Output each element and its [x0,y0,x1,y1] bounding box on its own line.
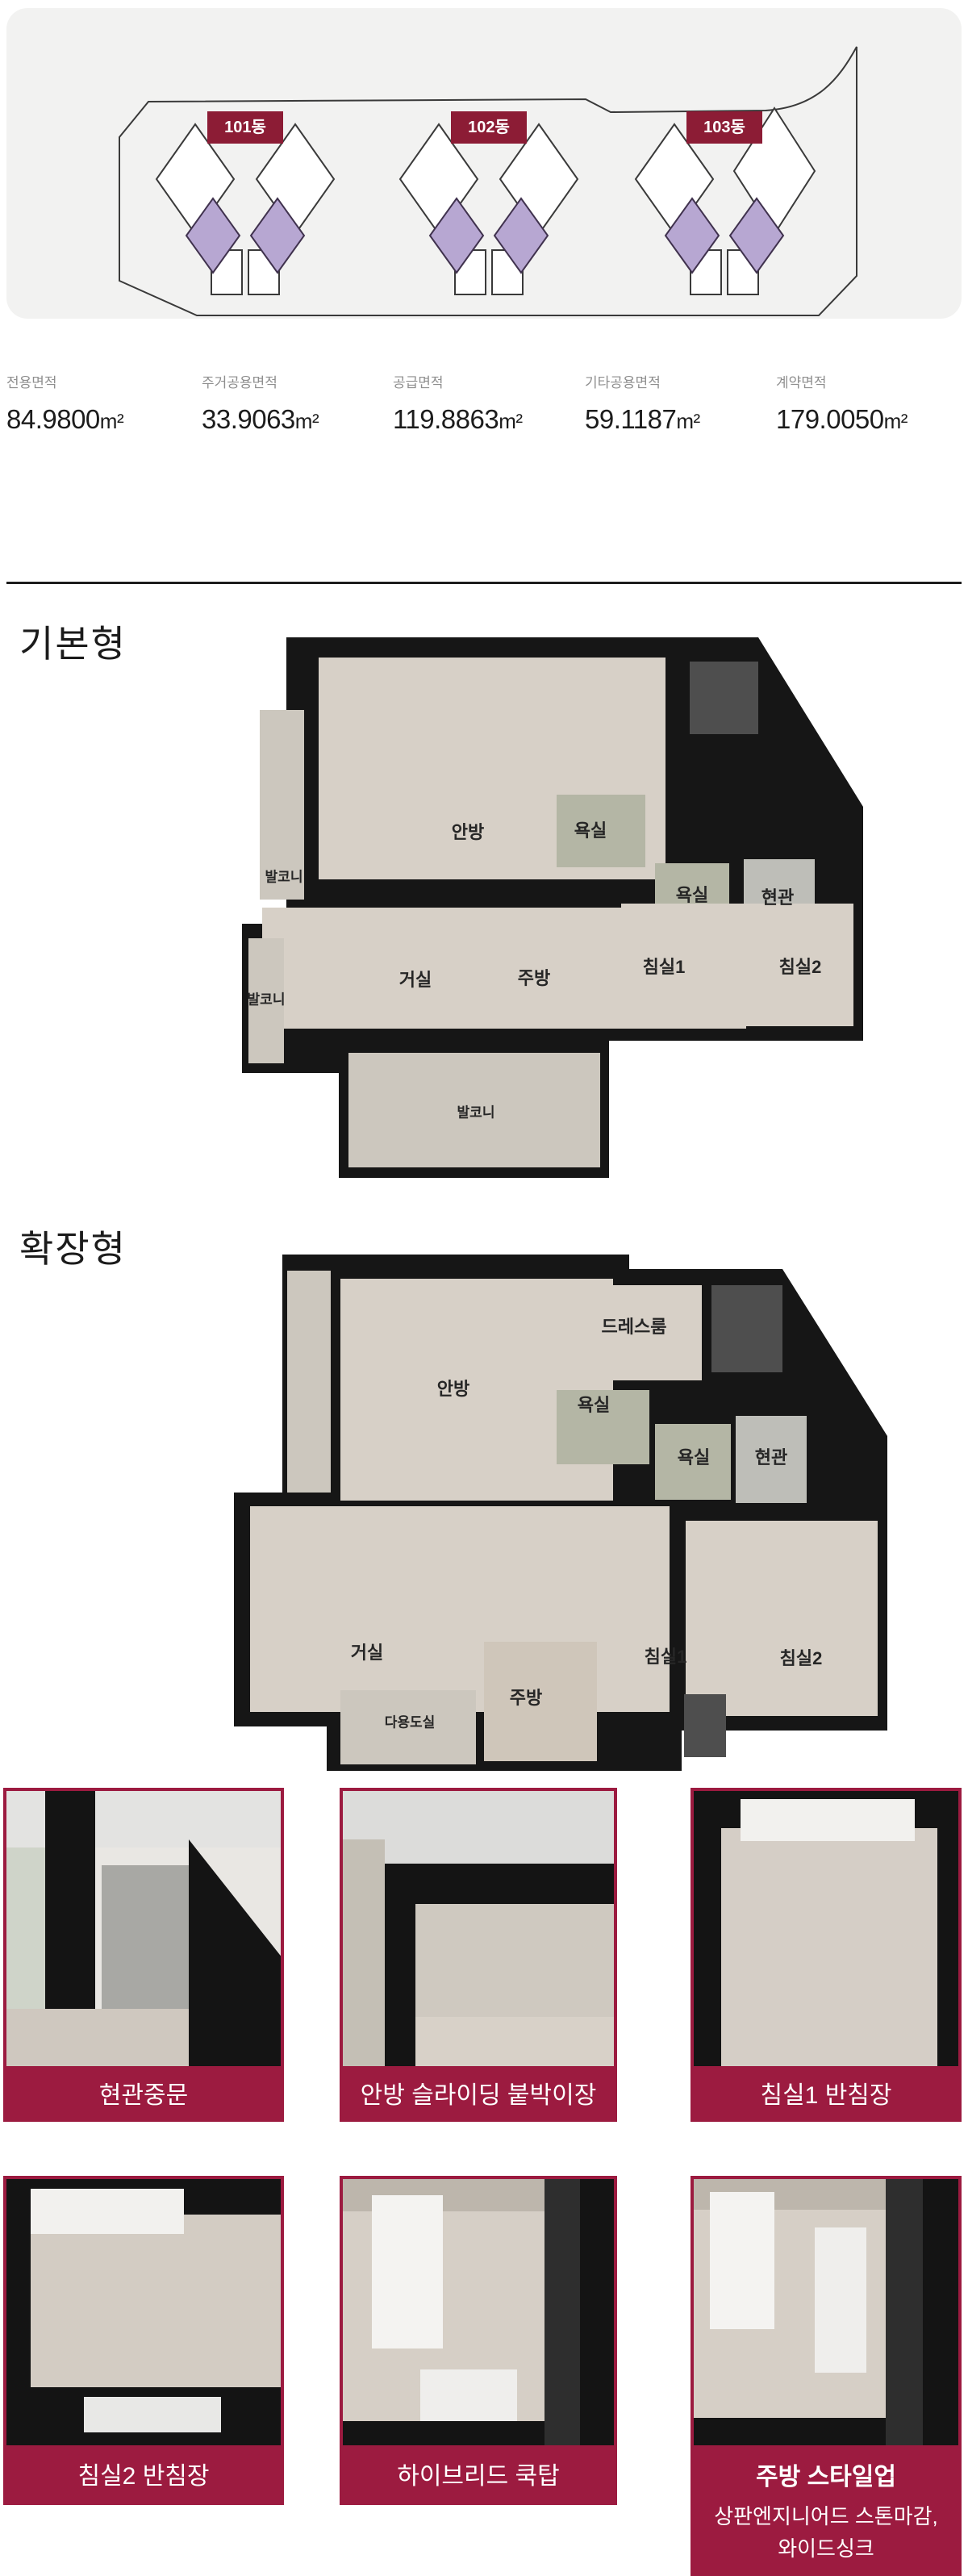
building-cluster-102 [400,124,578,294]
area-stat-value: 84.9800m² [6,404,123,435]
thumb-island [372,2195,443,2348]
section-divider [6,582,962,584]
feature-image-master-wardrobe [343,1791,614,2066]
room-label-master: 안방 [437,1375,469,1401]
thumb-window [84,2397,221,2432]
room-label-kitchen: 주방 [510,1684,542,1710]
bedrooms-area [686,1521,878,1716]
room-label-bath1: 욕실 [574,816,607,842]
feature-card-entrance-door: 현관중문 [3,1788,284,2122]
feature-caption-sub2: 와이드싱크 [694,2532,958,2565]
area-stat-label: 기타공용면적 [585,371,700,391]
site-plan-card: 101동 102동 103동 [6,8,962,319]
room-label-dressroom: 드레스룸 [602,1313,667,1338]
feature-image-bedroom1-closet [694,1791,958,2066]
feature-caption: 침실1 반침장 [694,2066,958,2119]
thumb-wall [694,2418,886,2445]
feature-image-hybrid-cooktop [343,2179,614,2445]
feature-card-hybrid-cooktop: 하이브리드 쿡탑 [340,2176,617,2505]
area-stat-label: 주거공용면적 [202,371,319,391]
thumb-wall [580,2179,614,2445]
feature-card-master-wardrobe: 안방 슬라이딩 붙박이장 [340,1788,617,2122]
area-stat-label: 전용면적 [6,371,123,391]
feature-card-bedroom2-closet: 침실2 반침장 [3,2176,284,2505]
room-label-balcony: 발코니 [457,1101,495,1121]
room-label-bath1: 욕실 [578,1391,610,1417]
balcony-area [287,1271,331,1493]
feature-caption: 안방 슬라이딩 붙박이장 [343,2066,614,2119]
floor-plan-basic: 안방 발코니 욕실 욕실 현관 발코니 거실 주방 침실1 침실2 발코니 [242,633,863,1210]
feature-image-bedroom2-closet [6,2179,281,2445]
area-stat-contract: 계약면적 179.0050m² [776,371,907,435]
thumb-wall [385,1904,415,2066]
site-plan-drawing [6,8,962,319]
building-cluster-101 [156,124,334,294]
feature-caption-sub1: 상판엔지니어드 스톤마감, [694,2500,958,2532]
section-title-basic: 기본형 [19,615,127,668]
room-label-utility: 다용도실 [385,1711,436,1731]
room-label-living: 거실 [351,1639,383,1664]
thumb-wall [694,1791,721,2066]
thumb-closet-shelf [741,1799,915,1841]
area-stat-exclusive: 전용면적 84.9800m² [6,371,123,435]
area-stat-value: 33.9063m² [202,404,319,435]
feature-caption: 현관중문 [6,2066,281,2119]
area-stat-supply: 공급면적 119.8863m² [393,371,523,435]
room-label-bath2: 욕실 [678,1443,710,1469]
thumb-wall [343,2421,544,2445]
shaft-area [711,1285,782,1372]
thumb-closet-shelf [31,2189,184,2234]
room-label-balcony: 발코니 [248,988,286,1008]
area-stat-value: 59.1187m² [585,404,700,435]
section-title-extended: 확장형 [19,1220,127,1273]
thumb-cooktop-unit [420,2369,517,2421]
thumb-island-sink [815,2227,866,2373]
thumb-counter [544,2179,580,2445]
room-label-bedroom1: 침실1 [643,953,686,979]
room-label-bedroom2: 침실2 [779,953,822,979]
shaft-area [684,1694,726,1757]
thumb-wall [923,2179,958,2445]
building-badge-102: 102동 [451,111,527,144]
room-label-entrance: 현관 [761,883,794,909]
feature-caption: 하이브리드 쿡탑 [343,2445,614,2502]
room-label-balcony: 발코니 [265,866,303,886]
thumb-counter [886,2179,923,2445]
thumb-cabinet [710,2192,774,2329]
thumb-tile [343,1839,385,2066]
area-stat-residential-common: 주거공용면적 33.9063m² [202,371,319,435]
thumb-wall [937,1791,958,2066]
feature-image-entrance-door [6,1791,281,2066]
feature-caption: 침실2 반침장 [6,2445,281,2502]
floor-plan-extended: 드레스룸 안방 욕실 욕실 현관 거실 침실1 침실2 주방 다용도실 [234,1255,887,1771]
feature-image-kitchen-styleup [694,2179,958,2445]
area-stat-other-common: 기타공용면적 59.1187m² [585,371,700,435]
thumb-wardrobe [415,1904,614,2017]
area-stat-label: 공급면적 [393,371,523,391]
room-label-entrance: 현관 [755,1443,787,1469]
thumb-wall [385,1864,614,1904]
room-label-bath2: 욕실 [676,881,708,907]
page: 101동 102동 103동 전용면적 84.9800m² 주거공용면적 33.… [0,0,968,2576]
area-stat-label: 계약면적 [776,371,907,391]
building-badge-103: 103동 [686,111,762,144]
living-area [250,1506,670,1712]
thumb-tile [6,1847,45,2009]
room-label-bedroom1: 침실1 [645,1643,687,1668]
feature-card-bedroom1-closet: 침실1 반침장 [691,1788,962,2122]
thumb-wall-diagonal [189,1839,281,2066]
room-label-master: 안방 [452,818,484,844]
room-label-kitchen: 주방 [518,964,550,990]
thumb-floor [415,2017,614,2066]
building-badge-101: 101동 [207,111,283,144]
thumb-floor [6,2009,189,2066]
shaft-area [690,662,758,734]
feature-caption-group: 주방 스타일업 상판엔지니어드 스톤마감, 와이드싱크 [694,2445,958,2573]
feature-card-kitchen-styleup: 주방 스타일업 상판엔지니어드 스톤마감, 와이드싱크 [691,2176,962,2576]
area-stat-value: 119.8863m² [393,404,523,435]
thumb-wall [45,1791,95,2025]
room-label-living: 거실 [399,966,432,992]
room-label-bedroom2: 침실2 [780,1644,823,1670]
feature-caption-title: 주방 스타일업 [694,2457,958,2492]
area-stat-value: 179.0050m² [776,404,907,435]
